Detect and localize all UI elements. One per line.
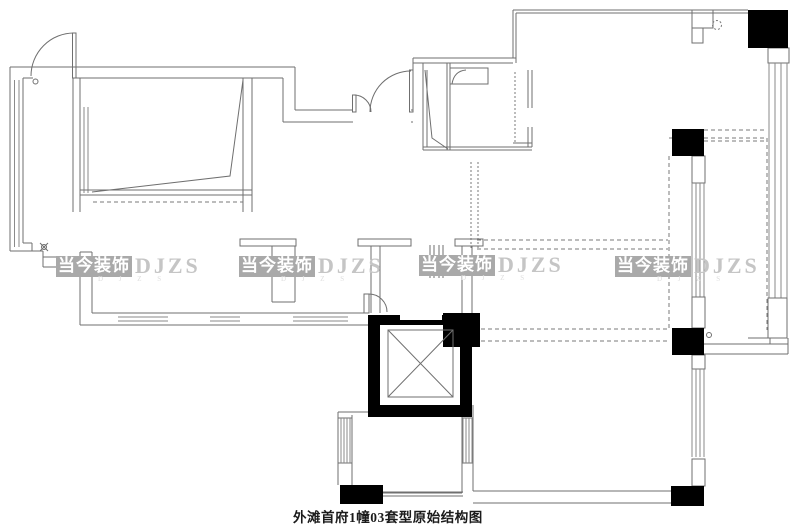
beam-dashed-lines [471,72,767,341]
elevator-shaft [368,313,480,417]
watermark-sub: D J Z S [657,275,727,283]
column-east-upper [672,129,704,156]
gas-meter-icon [713,21,722,30]
column-bottom-right [671,486,704,506]
diagonal-marks [92,80,243,202]
column-top-right [748,10,788,48]
drain-symbol-icon [40,243,48,251]
watermark-sub: D J Z S [281,275,351,283]
pipe-icon [707,333,712,338]
watermark-sub: D J Z S [98,275,168,283]
drawing-caption: 外滩首府1幢03套型原始结构图 [293,506,483,526]
column-bottom-left [340,485,383,504]
watermark-cn: 当今装饰 [239,256,315,277]
shaft-stub [40,10,722,338]
watermark-sub: D J Z S [461,274,531,282]
kitchen-detail [425,63,488,150]
elevator-cross-icon [388,330,453,397]
watermark-cn: 当今装饰 [56,256,132,277]
watermark-cn: 当今装饰 [419,255,495,276]
watermark-cn: 当今装饰 [615,256,691,277]
column-east-mid [672,328,704,355]
floor-plan-canvas: 当今装饰 DJZS D J Z S 当今装饰 DJZS D J Z S 当今装饰… [0,0,805,531]
elevator-door-gap [400,315,442,320]
door-stop-icon [33,79,38,84]
